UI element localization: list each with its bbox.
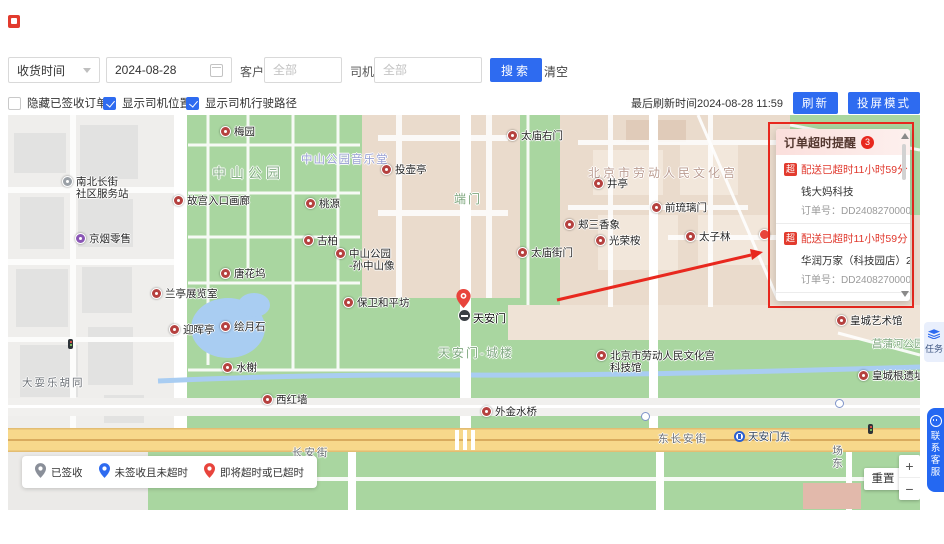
map-poi[interactable]: 皇城根遗址 — [858, 371, 920, 383]
poi-icon — [858, 370, 869, 381]
poi-label: 外金水桥 — [495, 407, 537, 419]
poi-label: 兰亭展览室 — [165, 289, 218, 301]
order-number: 订单号：DD24082700005 — [801, 202, 896, 217]
poi-label: 投壶亭 — [395, 165, 427, 177]
poi-label: 前琉璃门 — [665, 203, 707, 215]
poi-icon — [481, 406, 492, 417]
map-poi[interactable]: 古柏 — [303, 236, 338, 248]
poi-icon — [507, 130, 518, 141]
poi-icon — [381, 164, 392, 175]
poi-icon — [173, 195, 184, 206]
zoom-control: + − — [899, 455, 920, 500]
poi-icon — [220, 268, 231, 279]
refresh-cluster: 最后刷新时间2024-08-28 11:59 刷新 投屏模式 — [631, 92, 920, 114]
driver-input[interactable] — [374, 57, 482, 83]
poi-icon — [62, 176, 73, 187]
checkbox-driver-pos[interactable]: 显示司机位置 — [103, 95, 191, 111]
customer-service-label: 联系客服 — [930, 431, 942, 479]
poi-icon — [220, 126, 231, 137]
poi-icon — [169, 324, 180, 335]
map-poi[interactable]: 太子林 — [685, 232, 731, 244]
map-poi[interactable]: 太庙街门 — [517, 248, 573, 260]
checkbox-driver-route[interactable]: 显示司机行驶路径 — [186, 95, 297, 111]
map-poi[interactable]: 唐花坞 — [220, 269, 266, 281]
map-poi[interactable]: 南北长街社区服务站 — [62, 177, 129, 200]
refresh-button[interactable]: 刷新 — [793, 92, 838, 114]
cast-mode-button[interactable]: 投屏模式 — [848, 92, 920, 114]
last-refresh-time: 最后刷新时间2024-08-28 11:59 — [631, 95, 783, 111]
map-poi[interactable]: 光荣桉 — [595, 236, 641, 248]
poi-label: 皇城根遗址 — [872, 371, 920, 383]
map-poi[interactable]: 北京市劳动人民文化宫科技馆 — [596, 351, 715, 374]
poi-label: 皇城艺术馆 — [850, 316, 903, 328]
poi-icon — [651, 202, 662, 213]
poi-icon — [303, 235, 314, 246]
poi-icon — [685, 231, 696, 242]
poi-label: 京烟零售 — [89, 234, 131, 246]
scrollbar-thumb[interactable] — [902, 144, 906, 180]
calendar-icon — [210, 64, 223, 77]
order-status-row: 超剩余0分 — [784, 300, 896, 301]
scroll-down-icon[interactable] — [901, 291, 909, 297]
order-status: 配送已超时11小时59分 — [801, 231, 908, 246]
poi-label: 水榭 — [236, 363, 257, 375]
zoom-in-button[interactable]: + — [899, 455, 920, 478]
poi-icon — [836, 315, 847, 326]
customer-label: 客户 — [240, 63, 264, 80]
poi-label: 北京市劳动人民文化宫科技馆 — [610, 351, 715, 374]
date-type-select-value: 收货时间 — [17, 62, 65, 79]
poi-icon — [595, 235, 606, 246]
poi-label: 迎晖亭 — [183, 325, 215, 337]
poi-icon — [220, 321, 231, 332]
driver-route-checkbox[interactable] — [186, 97, 199, 110]
driver-location-marker[interactable] — [759, 229, 770, 240]
legend-label: 已签收 — [51, 465, 83, 480]
task-tab[interactable]: 任务 — [924, 322, 944, 362]
legend-item: 即将超时或已超时 — [204, 463, 304, 481]
task-tab-label: 任务 — [925, 342, 943, 355]
map-poi[interactable]: 保卫和平坊 — [343, 298, 410, 310]
poi-icon — [222, 362, 233, 373]
poi-icon — [305, 198, 316, 209]
order-status-row: 超配送已超时11小时59分 — [784, 162, 896, 177]
map-poi[interactable]: 井亭 — [593, 179, 628, 191]
map-poi[interactable]: 太庙右门 — [507, 131, 563, 143]
map-poi[interactable]: 迎晖亭 — [169, 325, 215, 337]
legend-item: 未签收且未超时 — [99, 463, 189, 481]
road-badge-icon — [835, 399, 844, 408]
timeout-tag: 超 — [784, 163, 797, 176]
legend-item: 已签收 — [35, 463, 83, 481]
date-picker[interactable]: 2024-08-28 — [106, 57, 232, 83]
map-poi[interactable]: 桃源 — [305, 199, 340, 211]
map-pin-icon — [204, 463, 215, 481]
order-status: 剩余0分 — [801, 300, 838, 301]
reset-button[interactable]: 重置 — [864, 468, 902, 490]
map-pin-icon — [35, 463, 46, 481]
poi-label: 绘月石 — [234, 322, 266, 334]
map-poi[interactable]: 西红墙 — [262, 395, 308, 407]
map-poi[interactable]: 郏三香象 — [564, 220, 620, 232]
customer-input[interactable] — [264, 57, 342, 83]
poi-icon — [151, 288, 162, 299]
poi-icon — [517, 247, 528, 258]
poi-label: 唐花坞 — [234, 269, 266, 281]
map-poi[interactable]: 中山公园-孙中山像 — [335, 249, 395, 272]
poi-icon — [593, 178, 604, 189]
order-customer: 华润万家（科技园店）2 — [801, 253, 896, 268]
tiananmen-gate-icon — [458, 309, 471, 322]
driver-route-label: 显示司机行驶路径 — [205, 95, 297, 111]
hide-signed-checkbox[interactable] — [8, 97, 21, 110]
metro-station-label: 天安门东 — [748, 429, 790, 444]
poi-icon — [564, 219, 575, 230]
date-type-select[interactable]: 收货时间 — [8, 57, 100, 83]
map-legend: 已签收未签收且未超时即将超时或已超时 — [22, 456, 317, 488]
poi-label: 光荣桉 — [609, 236, 641, 248]
traffic-light-icon — [868, 424, 873, 434]
map-poi[interactable]: 投壶亭 — [381, 165, 427, 177]
poi-icon — [335, 248, 346, 259]
poi-icon — [262, 394, 273, 405]
metro-station-tiananmen-east[interactable]: 天安门东 — [734, 429, 790, 444]
timeout-order-item[interactable]: 超配送已超时11小时59分华润万家（科技园店）2订单号：DD2408270000… — [776, 223, 910, 292]
poi-label: 梅园 — [234, 127, 255, 139]
poi-label: 桃源 — [319, 199, 340, 211]
scroll-up-icon[interactable] — [901, 133, 909, 139]
checkbox-hide-signed[interactable]: 隐藏已签收订单 — [8, 95, 108, 111]
poi-label: 保卫和平坊 — [357, 298, 410, 310]
timeout-count-badge: 3 — [861, 136, 874, 149]
red-pin-icon — [456, 289, 471, 308]
legend-label: 即将超时或已超时 — [220, 465, 304, 480]
poi-label: 郏三香象 — [578, 220, 620, 232]
poi-icon — [343, 297, 354, 308]
customer-service-icon — [930, 415, 942, 427]
poi-label: 故宫入口画廊 — [187, 196, 250, 208]
order-number-label: 订单号： — [801, 206, 841, 217]
poi-label: 太子林 — [699, 232, 731, 244]
driver-pos-checkbox[interactable] — [103, 97, 116, 110]
search-button[interactable]: 搜索 — [490, 58, 542, 82]
road-badge-icon — [641, 412, 650, 421]
order-number: 订单号：DD24082700003 — [801, 271, 896, 286]
poi-label: 太庙街门 — [531, 248, 573, 260]
poi-icon — [75, 233, 86, 244]
legend-label: 未签收且未超时 — [115, 465, 189, 480]
poi-label: 古柏 — [317, 236, 338, 248]
customer-service-tab[interactable]: 联系客服 — [927, 408, 944, 492]
timeout-order-item[interactable]: 超剩余0分华润万家（科技园店）2 — [776, 292, 910, 301]
clear-button[interactable]: 清空 — [544, 63, 568, 80]
hide-signed-label: 隐藏已签收订单 — [27, 95, 108, 111]
timeout-panel-header: 订单超时提醒 3 — [776, 129, 910, 155]
map-poi[interactable]: 外金水桥 — [481, 407, 537, 419]
timeout-panel-title: 订单超时提醒 — [784, 134, 856, 151]
map-poi[interactable]: 京烟零售 — [75, 234, 131, 246]
panel-scrollbar[interactable] — [899, 131, 909, 299]
order-status: 配送已超时11小时59分 — [801, 162, 908, 177]
driver-pos-label: 显示司机位置 — [122, 95, 191, 111]
date-value: 2024-08-28 — [115, 63, 176, 77]
map-pin-icon — [99, 463, 110, 481]
poi-label: 南北长街社区服务站 — [76, 177, 129, 200]
chevron-down-icon — [83, 68, 91, 73]
metro-icon — [734, 431, 745, 442]
layers-icon — [928, 329, 940, 339]
timeout-tag: 超 — [784, 232, 797, 245]
order-number-label: 订单号： — [801, 275, 841, 286]
timeout-order-list: 超配送已超时11小时59分钱大妈科技订单号：DD24082700005超配送已超… — [776, 155, 910, 301]
timeout-order-item[interactable]: 超配送已超时11小时59分钱大妈科技订单号：DD24082700005 — [776, 155, 910, 223]
map-poi[interactable]: 皇城艺术馆 — [836, 316, 903, 328]
poi-label: 井亭 — [607, 179, 628, 191]
timeout-panel: 订单超时提醒 3 超配送已超时11小时59分钱大妈科技订单号：DD2408270… — [776, 129, 910, 301]
tiananmen-label: 天安门 — [473, 310, 506, 326]
poi-icon — [596, 350, 607, 361]
poi-label: 中山公园-孙中山像 — [349, 249, 395, 272]
map-poi[interactable]: 梅园 — [220, 127, 255, 139]
poi-label: 太庙右门 — [521, 131, 563, 143]
zoom-out-button[interactable]: − — [899, 478, 920, 500]
map-poi[interactable]: 水榭 — [222, 363, 257, 375]
app-logo — [8, 15, 20, 28]
map-poi[interactable]: 绘月石 — [220, 322, 266, 334]
traffic-light-icon — [68, 339, 73, 349]
poi-label: 西红墙 — [276, 395, 308, 407]
order-customer: 钱大妈科技 — [801, 184, 896, 199]
map-poi[interactable]: 故宫入口画廊 — [173, 196, 250, 208]
map-poi[interactable]: 兰亭展览室 — [151, 289, 218, 301]
driver-label: 司机 — [350, 63, 374, 80]
order-status-row: 超配送已超时11小时59分 — [784, 231, 896, 246]
map-poi[interactable]: 前琉璃门 — [651, 203, 707, 215]
